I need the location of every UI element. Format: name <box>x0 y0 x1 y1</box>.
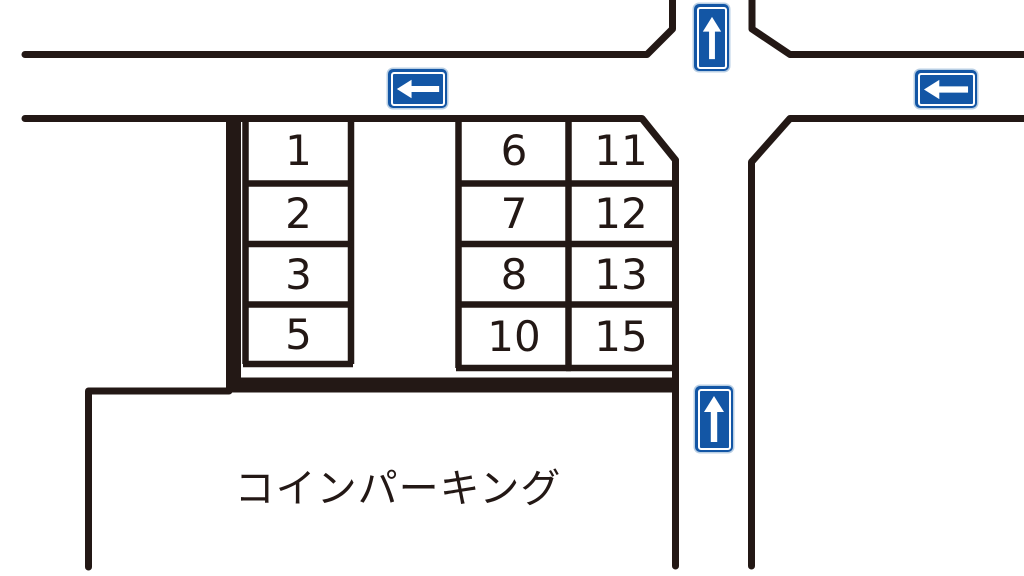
space-label: 3 <box>285 254 312 296</box>
space-label: 11 <box>594 130 647 172</box>
space-label: 1 <box>285 130 312 172</box>
one-way-sign-left-right <box>915 70 977 108</box>
parking-space-11: 11 <box>569 122 673 180</box>
left-arrow-icon <box>395 77 441 101</box>
one-way-sign-up-side <box>695 386 733 452</box>
parking-space-6: 6 <box>459 122 569 180</box>
left-arrow-icon <box>922 78 970 101</box>
space-label: 13 <box>594 254 647 296</box>
space-label: 5 <box>285 314 312 356</box>
parking-space-13: 13 <box>569 247 673 302</box>
space-label: 7 <box>501 193 528 235</box>
parking-space-10: 10 <box>459 308 569 365</box>
space-label: 12 <box>594 193 647 235</box>
one-way-sign-left-center <box>388 69 447 108</box>
parking-space-3: 3 <box>246 247 351 302</box>
space-label: 10 <box>487 316 540 358</box>
parking-space-8: 8 <box>459 247 569 302</box>
road-lower-right-edge <box>752 119 1024 567</box>
one-way-sign-up-top <box>694 4 729 71</box>
parking-map: 1 2 3 5 6 7 8 10 11 12 13 15 コインパーキング <box>0 0 1024 576</box>
space-label: 6 <box>501 130 528 172</box>
road-top-left-edge <box>25 0 673 55</box>
space-label: 15 <box>594 316 647 358</box>
road-top-right-edge <box>752 0 1024 55</box>
up-arrow-icon <box>702 394 726 444</box>
parking-space-7: 7 <box>459 187 569 241</box>
parking-space-12: 12 <box>569 187 673 241</box>
space-label: 8 <box>501 254 528 296</box>
up-arrow-icon <box>701 12 723 64</box>
lot-name-label: コインパーキング <box>98 458 698 512</box>
parking-space-15: 15 <box>569 308 673 365</box>
parking-space-5: 5 <box>246 308 351 362</box>
parking-space-1: 1 <box>246 122 351 180</box>
parking-space-2: 2 <box>246 187 351 241</box>
space-label: 2 <box>285 193 312 235</box>
